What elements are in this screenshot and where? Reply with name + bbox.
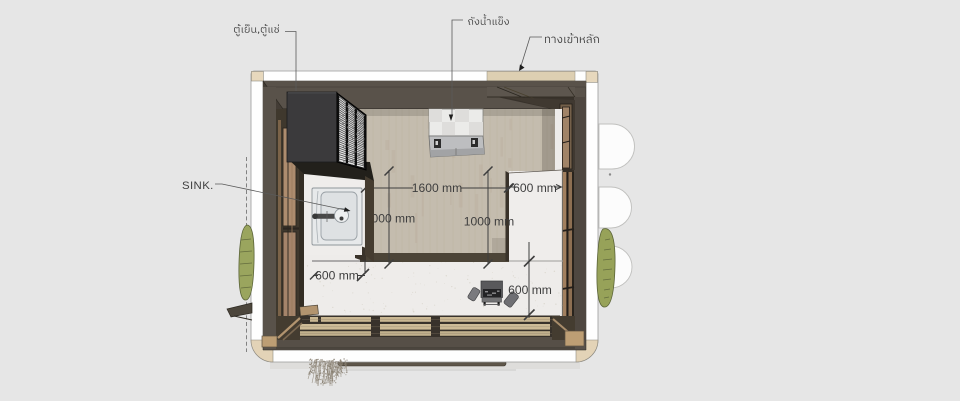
svg-text:600 mm: 600 mm (508, 283, 552, 297)
svg-text:SINK.: SINK. (182, 180, 214, 192)
svg-text:600 mm: 600 mm (513, 181, 557, 195)
svg-text:1000 mm: 1000 mm (464, 215, 514, 229)
svg-text:600 mm: 600 mm (315, 269, 359, 283)
svg-text:1600 mm: 1600 mm (412, 181, 462, 195)
